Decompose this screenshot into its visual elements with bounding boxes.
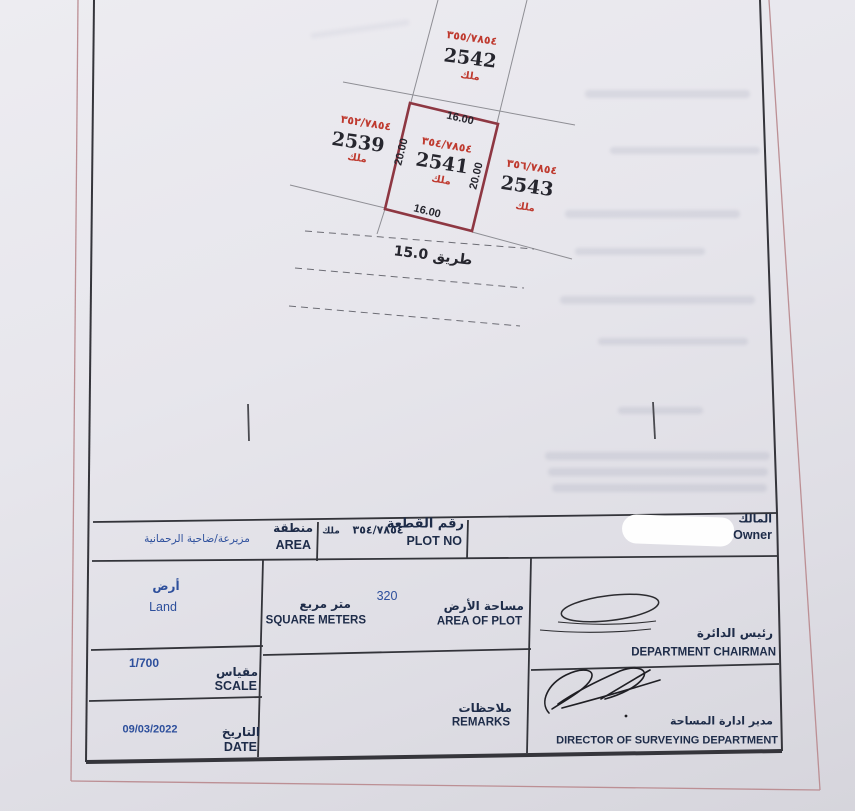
square-meters-label-ar: متر مربع — [299, 598, 351, 610]
land-type-en: Land — [149, 601, 177, 614]
area-value: مزيرعة/ضاحية الرحمانية — [144, 534, 250, 545]
area-of-plot-value: 320 — [377, 590, 398, 603]
date-label-en: DATE — [224, 741, 257, 754]
director-signature — [545, 668, 660, 717]
owner-label-en: Owner — [733, 529, 772, 542]
document-linework — [0, 0, 855, 811]
director-label-en: DIRECTOR OF SURVEYING DEPARTMENT — [556, 736, 778, 747]
scale-label-ar: مقياس — [216, 666, 258, 678]
fold-marks — [248, 402, 655, 441]
land-type-ar: أرض — [152, 580, 179, 592]
chairman-label-ar: رئيس الدائرة — [697, 627, 773, 639]
owner-label-ar: المالك — [738, 514, 772, 525]
remarks-label-en: REMARKS — [452, 717, 510, 729]
land-survey-document: ٣٥٥/٧٨٥٤ 2542 ملك ٣٥٢/٧٨٥٤ 2539 ملك ٣٥٤/… — [0, 0, 855, 811]
owner-name-redaction — [622, 514, 735, 547]
chairman-label-en: DEPARTMENT CHAIRMAN — [631, 647, 776, 659]
plot-no-label-en: PLOT NO — [406, 535, 462, 548]
area-label-ar: منطقة — [273, 522, 313, 534]
date-label-ar: التاريخ — [222, 726, 260, 738]
director-label-ar: مدير ادارة المساحة — [670, 716, 773, 727]
plot-no-tenure: ملك — [322, 528, 340, 537]
area-label-en: AREA — [276, 539, 311, 552]
area-of-plot-label-en: AREA OF PLOT — [437, 616, 522, 628]
scale-label-en: SCALE — [215, 680, 257, 693]
remarks-label-ar: ملاحظات — [459, 702, 512, 714]
plot-no-label-ar: رقم القطعة — [387, 518, 464, 531]
date-value: 09/03/2022 — [122, 725, 177, 736]
scale-value: 1/700 — [129, 657, 159, 669]
area-of-plot-label-ar: مساحة الأرض — [444, 600, 524, 612]
chairman-signature — [540, 590, 660, 633]
square-meters-label-en: SQUARE METERS — [266, 615, 366, 627]
